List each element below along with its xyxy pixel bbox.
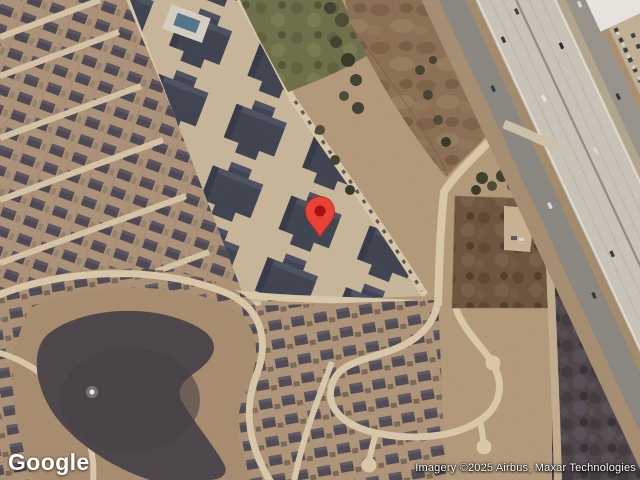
satellite-map-image[interactable] [0,0,640,480]
imagery-attribution: Imagery ©2025 Airbus, Maxar Technologies [415,462,636,474]
map-viewport[interactable]: Google Imagery ©2025 Airbus, Maxar Techn… [0,0,640,480]
grain-overlay [0,0,640,480]
google-logo[interactable]: Google [8,449,90,476]
marker-pin-dot [315,206,326,217]
